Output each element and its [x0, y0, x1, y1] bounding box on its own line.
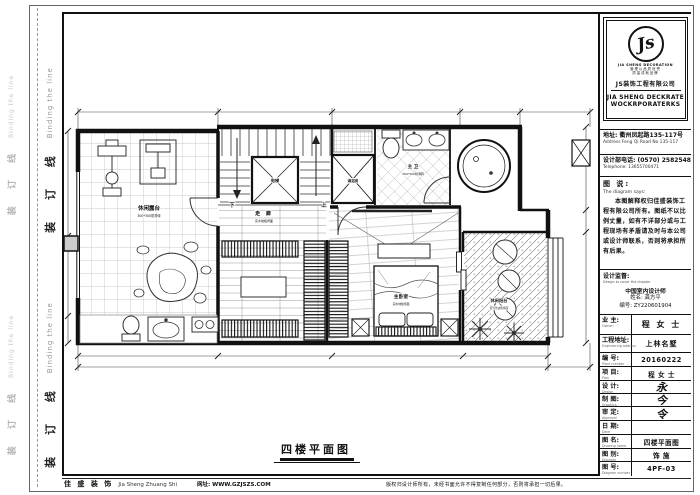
notes-body: 本图解释权归佳盛装饰工程有限公司所有。图纸不以比例丈量，如有不详部分或与工程现场…	[603, 197, 688, 257]
row-value	[632, 421, 691, 434]
balcony-sublabel: 亚光仿古砖饰面	[490, 306, 509, 310]
project-address-label-cn: 工程地址:	[602, 337, 629, 344]
project-address-row: 工程地址: Engineering address 上林名墅	[600, 335, 691, 353]
row-label-en: Plan	[602, 376, 629, 380]
shower-label: 淋浴房	[348, 178, 359, 183]
row-label: 图 别:Diagram	[600, 449, 632, 461]
owner-row: 业 主: Owner: 程 女 士	[600, 315, 691, 335]
table-row-approval: 审 定:Approval 令	[600, 407, 691, 421]
row-label: 图 号:Diagram number	[600, 462, 632, 476]
drawing-number-value: 4PF-03	[632, 462, 691, 476]
logo-tagline-2: 质量成就品牌	[607, 71, 685, 76]
plant	[469, 318, 491, 340]
row-label-cn: 设 计:	[602, 383, 629, 390]
table-row-drawing-name: 图 名:Drawing name 四楼平面图	[600, 435, 691, 449]
stairs-down-label: 下	[229, 202, 235, 209]
table-row-drawing-type: 图 别:Diagram 饰 施	[600, 449, 691, 462]
row-label-en: Approval	[602, 416, 629, 420]
row-label-cn: 编 号:	[602, 355, 629, 362]
footer-brand-cn: 佳 盛 装 饰	[64, 479, 113, 489]
drawing-type-value: 饰 施	[632, 449, 691, 461]
terrace-sublabel: 300*300防滑砖	[137, 213, 161, 218]
supervision-title-cn: 设计监督:	[603, 271, 688, 280]
row-label-cn: 制 图:	[602, 396, 629, 403]
row-label: 编 号:Plant number	[600, 353, 632, 366]
brand-line-1: JIA SHENG DECKRATE	[607, 94, 685, 102]
bath-label: 主 卫	[408, 163, 419, 170]
hall-rug	[241, 277, 286, 297]
corridor-sublabel: 实木地板饰面	[255, 218, 273, 223]
brand-line-2: WOCKRPORATERKS	[607, 101, 685, 109]
row-value: 20160222	[632, 353, 691, 366]
table-row-number: 编 号:Plant number 20160222	[600, 353, 691, 367]
plant	[504, 323, 524, 343]
bedroom-label: 主卧室	[394, 293, 409, 300]
binding-line-text-outer-top: 装 订 线 Binding the line	[3, 45, 19, 245]
drawing-sheet: { "sheet": { "binding": { "cn": "装 订 线",…	[0, 0, 700, 495]
logo-divider	[611, 90, 681, 91]
row-label: 制 图:Graphics	[600, 394, 632, 406]
binding-en: Binding the line	[46, 302, 54, 373]
owner-label-en: Owner:	[602, 324, 629, 328]
terrace-fixtures	[80, 315, 218, 343]
stair-block	[218, 129, 330, 205]
corridor-label: 走 廊	[254, 210, 273, 217]
row-label-cn: 图 名:	[602, 437, 629, 444]
row-label-en: Date	[602, 430, 629, 434]
terrace-label: 休闲露台	[137, 204, 161, 212]
footer-brand-en: Jia Sheng Zhuang Shi	[118, 482, 177, 488]
title-block: Js JIA SHENG DECORATION 管理以品质信誉 质量成就品牌 J…	[598, 14, 691, 476]
elevator-label: 电梯	[271, 177, 280, 184]
supervision-line3: 编号: ZY220601904	[603, 303, 688, 311]
table-row-drawing-number: 图 号:Diagram number 4PF-03	[600, 462, 691, 476]
balcony-window	[548, 238, 563, 337]
bathtub	[458, 140, 510, 192]
row-label-en: Graphics	[602, 403, 629, 407]
telephone-en: Telephone: 13655700471	[603, 165, 688, 171]
bedroom-sublabel: 实木地板饰面	[393, 302, 410, 306]
drawing-name-value: 四楼平面图	[632, 435, 691, 448]
table-row-date: 日 期:Date	[600, 421, 691, 435]
row-label-cn: 日 期:	[602, 423, 629, 430]
row-label-en: Diagram	[602, 458, 629, 462]
logo-brand-small: JIA SHENG DECORATION	[607, 63, 685, 67]
table-row-drafting: 制 图:Graphics 今	[600, 394, 691, 407]
row-label: 日 期:Date	[600, 421, 632, 434]
project-address-value: 上林名墅	[632, 335, 691, 352]
address-en: Address Feng Qi Road No 135-117	[603, 140, 688, 146]
row-label-cn: 项 目:	[602, 369, 629, 376]
row-label-cn: 审 定:	[602, 409, 629, 416]
logo-section: Js JIA SHENG DECORATION 管理以品质信誉 质量成就品牌 J…	[600, 14, 691, 130]
address-cn: 地址: 衢州凤起路135-117号	[603, 132, 688, 140]
project-address-label-en: Engineering address	[602, 344, 629, 348]
footer-brand: 佳 盛 装 饰 Jia Sheng Zhuang Shi 网址: WWW.GZJ…	[64, 479, 271, 489]
floor-plan: 休闲露台 300*300防滑砖 走 廊 实木地板饰面 电梯 下 上 淋浴房 主 …	[55, 100, 600, 470]
notes-section: 图 说: The diagram says: 本图解释权归佳盛装饰工程有限公司所…	[600, 177, 691, 270]
duct-shaft	[572, 140, 590, 166]
row-label: 审 定:Approval	[600, 407, 632, 420]
notes-title-cn: 图 说:	[603, 179, 688, 189]
footer-copyright: 版权归设计师所有，未经书面允许不得复制任何部分，否则将承担一切后果。	[386, 481, 566, 488]
drafting-signature: 今	[632, 394, 691, 406]
binding-dashed-line	[37, 8, 38, 487]
plan-title: 四楼平面图	[246, 441, 386, 457]
stairs-up-label: 上	[321, 201, 327, 209]
bed	[374, 266, 438, 336]
plan-title-underline-thick	[280, 458, 354, 461]
supervision-line1: 中国室内设计师	[603, 286, 688, 295]
project-address-label: 工程地址: Engineering address	[600, 335, 632, 352]
row-label-en: Diagram number	[602, 471, 629, 475]
row-label-cn: 图 别:	[602, 451, 629, 458]
row-label: 设 计:Design	[600, 381, 632, 393]
supervision-section: 设计监督: Design to cover the chapter 中国室内设计…	[600, 270, 691, 315]
binding-en: Binding the line	[8, 75, 15, 138]
binding-line-text-outer-bottom: 装 订 线 Binding the line	[3, 285, 19, 485]
telephone-cn: 设计部电话: (0570) 2582548	[603, 157, 688, 165]
company-name: JS装饰工程有限公司	[607, 79, 685, 88]
balcony-label: 休闲阳台	[490, 297, 508, 304]
row-label-en: Drawing name	[602, 444, 629, 448]
binding-cn: 装 订 线	[5, 387, 18, 455]
plan-title-underline-thin	[274, 462, 360, 463]
logo-monogram: Js	[635, 32, 656, 55]
row-label: 图 名:Drawing name	[600, 435, 632, 448]
telephone-section: 设计部电话: (0570) 2582548 Telephone: 1365570…	[600, 155, 691, 177]
owner-label: 业 主: Owner:	[600, 315, 632, 334]
binding-en: Binding the line	[46, 67, 54, 138]
row-label-cn: 图 号:	[602, 464, 629, 471]
supervision-title-en: Design to cover the chapter	[603, 280, 688, 284]
binding-en: Binding the line	[8, 315, 15, 378]
bath-sublabel: 300*300防滑砖	[402, 171, 424, 176]
approval-signature: 令	[632, 407, 691, 420]
notes-title-en: The diagram says:	[603, 190, 688, 195]
supervision-line2: 姓名: 龚方平	[603, 295, 688, 303]
company-logo-icon: Js	[628, 26, 664, 62]
footer-website: 网址: WWW.GZJSZS.COM	[197, 480, 271, 488]
owner-label-cn: 业 主:	[602, 317, 629, 324]
address-section: 地址: 衢州凤起路135-117号 Address Feng Qi Road N…	[600, 130, 691, 155]
binding-cn: 装 订 线	[5, 147, 18, 215]
row-label-en: Design	[602, 390, 629, 394]
owner-value: 程 女 士	[632, 315, 691, 334]
table-row-design: 设 计:Design 永	[600, 381, 691, 394]
row-label: 项 目:Plan	[600, 367, 632, 380]
table-row-project: 项 目:Plan 程 女 士	[600, 367, 691, 381]
row-label-en: Plant number	[602, 362, 629, 366]
